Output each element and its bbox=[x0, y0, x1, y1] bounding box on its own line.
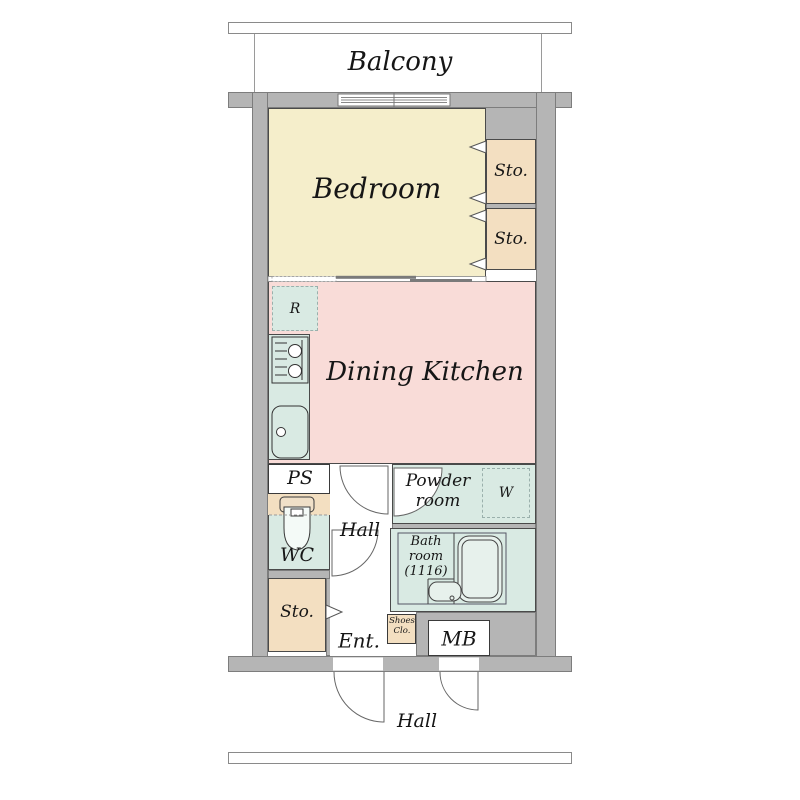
storage-top-2-label: Sto. bbox=[494, 230, 528, 250]
powder-room-label: Powder room bbox=[400, 472, 476, 511]
door-openings bbox=[333, 658, 479, 671]
bedroom-partition-icon bbox=[268, 276, 486, 282]
dining-kitchen-label: Dining Kitchen bbox=[326, 358, 524, 388]
meter-box-door-arc bbox=[440, 672, 478, 710]
hall-outer-label: Hall bbox=[397, 711, 437, 733]
balcony-label: Balcony bbox=[348, 48, 453, 78]
balcony-window-icon bbox=[338, 93, 450, 107]
entrance-door-arc bbox=[334, 672, 384, 722]
dining-hall-door-arc bbox=[340, 466, 388, 514]
storage-entrance-label: Sto. bbox=[280, 603, 314, 623]
entrance-label: Ent. bbox=[338, 630, 380, 653]
sink-icon bbox=[272, 406, 308, 458]
stove-icon bbox=[272, 337, 308, 383]
refrigerator-label: R bbox=[290, 301, 301, 317]
storage-top-1-label: Sto. bbox=[494, 162, 528, 182]
floor-plan: Balcony Bedroom Sto. Sto. Dining Kitchen… bbox=[0, 0, 800, 800]
hall-inner-label: Hall bbox=[340, 520, 380, 542]
pipe-space-label: PS bbox=[287, 468, 313, 490]
bedroom-label: Bedroom bbox=[313, 173, 442, 205]
washer-label: W bbox=[499, 485, 513, 501]
bath-room-label: Bath room (1116) bbox=[398, 535, 454, 580]
toilet-icon bbox=[269, 497, 329, 550]
meter-box-label: MB bbox=[441, 628, 476, 651]
linework-overlay bbox=[0, 0, 800, 800]
shoes-closet-label: Shoes Clo. bbox=[388, 617, 416, 637]
wc-label: WC bbox=[280, 545, 314, 567]
